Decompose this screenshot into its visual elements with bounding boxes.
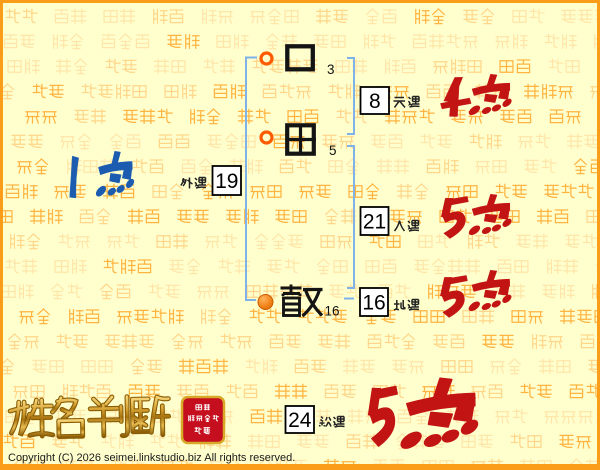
svg-text:21: 21 <box>363 211 386 234</box>
svg-text:19: 19 <box>215 170 238 193</box>
svg-text:8: 8 <box>369 90 381 113</box>
svg-text:16: 16 <box>362 292 385 315</box>
svg-text:16: 16 <box>325 304 340 319</box>
svg-text:5: 5 <box>329 143 337 158</box>
svg-text:3: 3 <box>327 62 335 77</box>
svg-text:Copyright (C) 2026 seimei.link: Copyright (C) 2026 seimei.linkstudio.biz… <box>8 452 295 464</box>
svg-text:24: 24 <box>288 409 312 432</box>
